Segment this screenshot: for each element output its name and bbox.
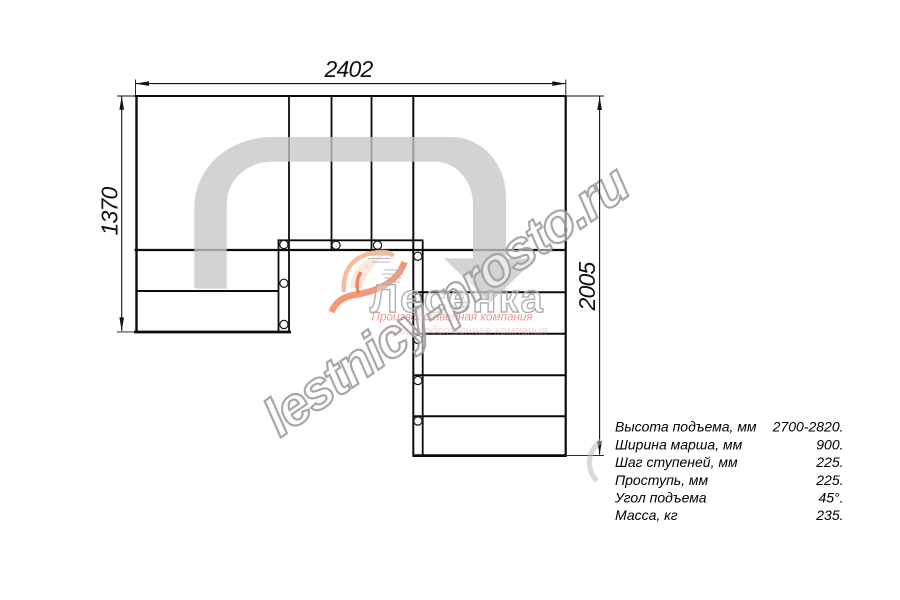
svg-text:225.: 225. bbox=[815, 472, 843, 488]
svg-text:45°.: 45°. bbox=[818, 490, 843, 506]
svg-text:Угол подъема: Угол подъема bbox=[614, 490, 707, 506]
svg-text:Высота подъема, мм: Высота подъема, мм bbox=[615, 419, 757, 435]
svg-text:Масса, кг: Масса, кг bbox=[615, 507, 678, 523]
svg-text:2402: 2402 bbox=[324, 56, 374, 82]
svg-text:Ширина марша, мм: Ширина марша, мм bbox=[615, 436, 743, 452]
svg-text:235.: 235. bbox=[815, 507, 843, 523]
svg-text:900.: 900. bbox=[816, 436, 843, 452]
svg-text:Проступь, мм: Проступь, мм bbox=[615, 472, 709, 488]
svg-text:1370: 1370 bbox=[97, 187, 123, 236]
svg-text:2005: 2005 bbox=[574, 262, 600, 312]
svg-text:Шаг ступеней, мм: Шаг ступеней, мм bbox=[615, 454, 738, 470]
svg-text:2700-2820.: 2700-2820. bbox=[772, 419, 844, 435]
svg-text:225.: 225. bbox=[815, 454, 843, 470]
